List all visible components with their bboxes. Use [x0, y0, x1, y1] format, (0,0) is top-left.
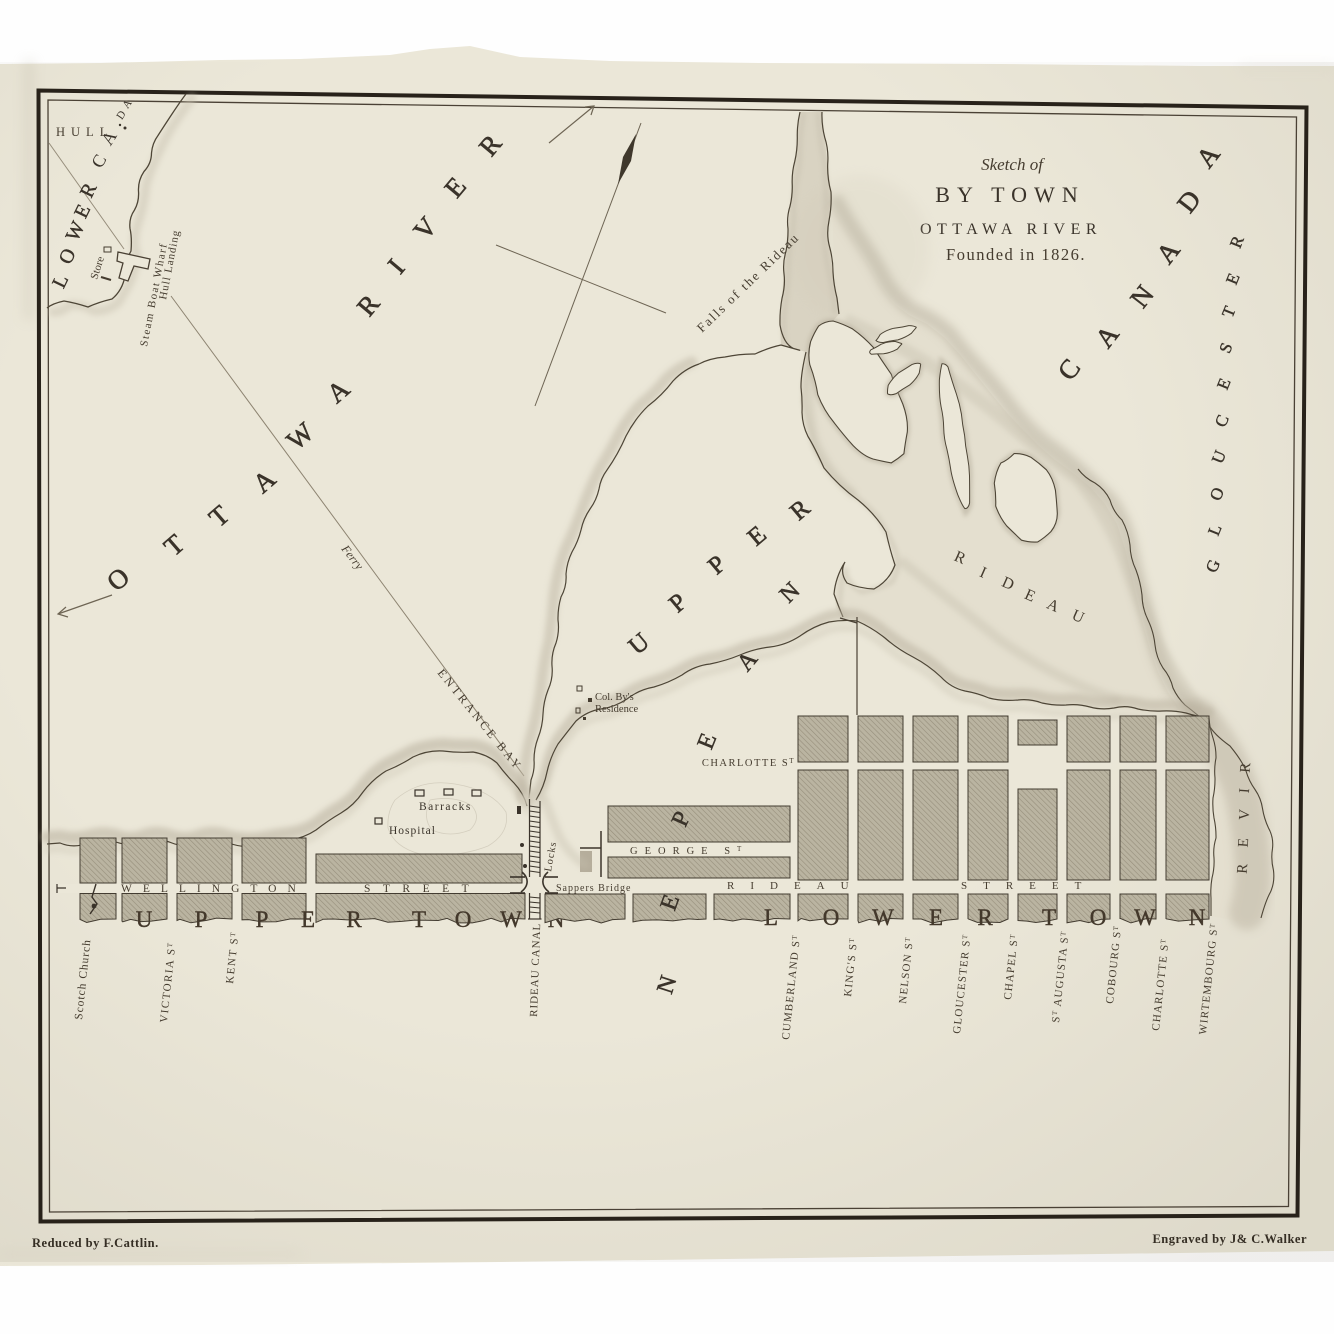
svg-text:Residence: Residence	[595, 704, 638, 715]
svg-text:Sketch of: Sketch of	[981, 155, 1045, 174]
svg-text:BY TOWN: BY TOWN	[935, 182, 1084, 207]
svg-text:W: W	[500, 907, 522, 932]
svg-text:W: W	[872, 905, 894, 930]
svg-text:E: E	[929, 905, 943, 930]
svg-text:V: V	[1237, 809, 1254, 821]
svg-text:L: L	[764, 905, 778, 930]
svg-text:Engraved by J& C.Walker: Engraved by J& C.Walker	[1152, 1232, 1307, 1246]
svg-text:E: E	[1236, 838, 1253, 848]
svg-text:RIDEAU: RIDEAU	[727, 880, 865, 892]
svg-text:STREET: STREET	[961, 880, 1097, 892]
svg-text:CHARLOTTE ST: CHARLOTTE ST	[702, 757, 795, 769]
svg-text:O: O	[823, 905, 840, 930]
svg-text:O: O	[1090, 905, 1107, 930]
svg-text:Col. By's: Col. By's	[595, 692, 634, 703]
svg-text:R: R	[977, 905, 993, 930]
svg-text:E: E	[301, 907, 315, 932]
svg-text:Barracks: Barracks	[419, 801, 472, 813]
svg-text:P: P	[195, 907, 208, 932]
svg-text:Sappers Bridge: Sappers Bridge	[556, 883, 631, 894]
svg-text:R: R	[1235, 863, 1252, 874]
svg-text:Hospital: Hospital	[389, 825, 436, 837]
svg-text:U: U	[136, 907, 153, 932]
svg-text:OTTAWA RIVER: OTTAWA RIVER	[920, 221, 1102, 238]
svg-text:T: T	[412, 907, 426, 932]
svg-text:N: N	[1189, 905, 1206, 930]
svg-text:P: P	[256, 907, 269, 932]
svg-text:T: T	[1042, 905, 1056, 930]
svg-text:Reduced by F.Cattlin.: Reduced by F.Cattlin.	[32, 1236, 159, 1250]
svg-text:R: R	[1238, 762, 1255, 773]
svg-text:O: O	[455, 907, 472, 932]
svg-text:R: R	[346, 907, 362, 932]
svg-text:GEORGE ST: GEORGE ST	[630, 845, 748, 857]
svg-text:Founded in 1826.: Founded in 1826.	[946, 245, 1086, 264]
svg-text:W: W	[1134, 905, 1156, 930]
